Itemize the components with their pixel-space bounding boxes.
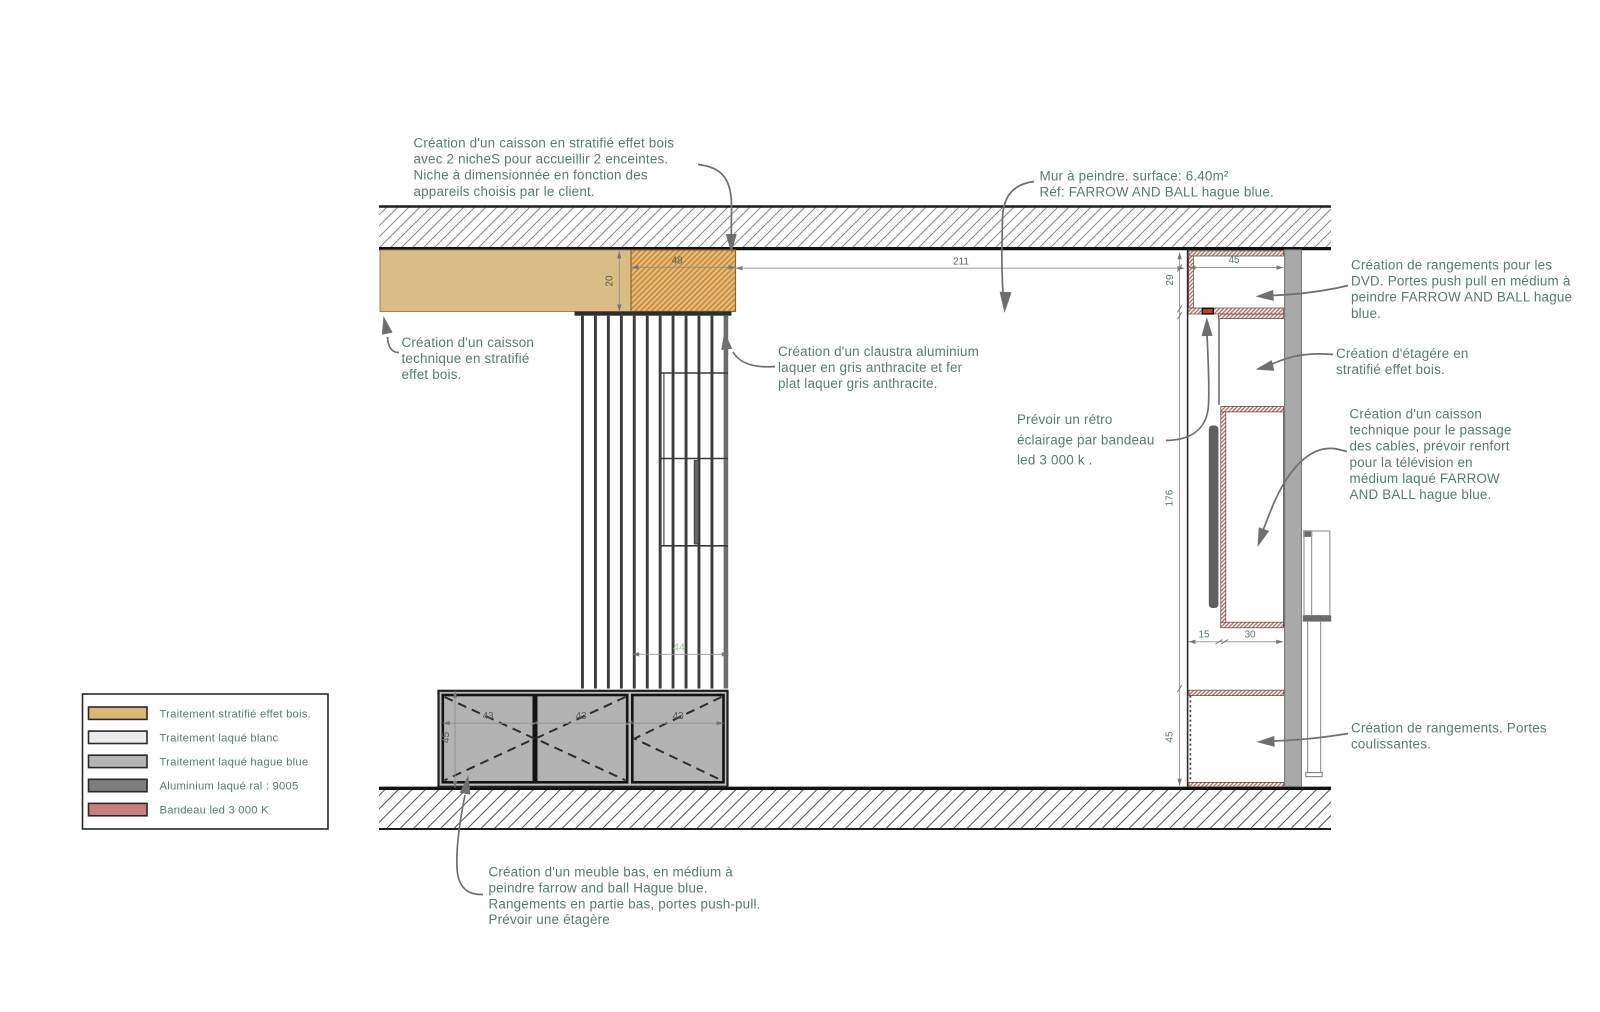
svg-text:éclairage par bandeau: éclairage par bandeau (1017, 432, 1154, 447)
svg-text:43: 43 (482, 711, 494, 722)
svg-text:Création d'un claustra alumini: Création d'un claustra aluminium (778, 344, 979, 359)
svg-text:Création d'étagére en: Création d'étagére en (1336, 346, 1469, 361)
svg-text:Création de rangements. Portes: Création de rangements. Portes (1351, 721, 1547, 736)
svg-text:Création d'un meuble bas, en m: Création d'un meuble bas, en médium à (489, 865, 734, 880)
svg-text:laquer en gris anthracite et f: laquer en gris anthracite et fer (778, 360, 963, 375)
svg-text:Mur à peindre. surface: 6.40m²: Mur à peindre. surface: 6.40m² (1040, 169, 1229, 184)
svg-text:15: 15 (1198, 629, 1210, 640)
svg-text:Aluminium laqué ral : 9005: Aluminium laqué ral : 9005 (160, 781, 299, 793)
svg-text:Traitement stratifié effet boi: Traitement stratifié effet bois. (160, 708, 311, 720)
svg-text:Rangements en partie bas, port: Rangements en partie bas, portes push-pu… (489, 896, 761, 911)
svg-text:Prévoir un rétro: Prévoir un rétro (1017, 412, 1112, 427)
svg-text:20: 20 (605, 275, 616, 287)
svg-text:45: 45 (441, 732, 452, 744)
svg-text:médium laqué FARROW: médium laqué FARROW (1350, 471, 1501, 486)
svg-text:30: 30 (1244, 629, 1256, 640)
svg-text:peindre farrow and ball Hague: peindre farrow and ball Hague blue. (489, 880, 708, 895)
svg-text:48: 48 (671, 256, 683, 267)
svg-text:stratifié effet bois.: stratifié effet bois. (1336, 362, 1445, 377)
svg-text:blue.: blue. (1351, 306, 1381, 321)
svg-text:effet bois.: effet bois. (402, 367, 462, 382)
svg-text:Création d'un caisson en strat: Création d'un caisson en stratifié effet… (414, 136, 675, 151)
svg-text:Création de rangements pour le: Création de rangements pour les (1351, 258, 1552, 273)
svg-text:Traitement laqué hague blue: Traitement laqué hague blue (160, 757, 309, 769)
svg-text:29: 29 (1165, 274, 1176, 286)
svg-text:des cables, prévoir renfort: des cables, prévoir renfort (1350, 439, 1510, 454)
svg-text:technique pour le passage: technique pour le passage (1350, 423, 1512, 438)
svg-text:44: 44 (673, 642, 685, 654)
svg-text:pour la télévision en: pour la télévision en (1350, 455, 1473, 470)
svg-text:45: 45 (1164, 731, 1175, 743)
svg-text:Traitement laqué blanc: Traitement laqué blanc (160, 732, 279, 744)
svg-text:technique en stratifié: technique en stratifié (402, 351, 530, 366)
svg-text:Prévoir une étagère: Prévoir une étagère (489, 912, 610, 927)
svg-text:coulissantes.: coulissantes. (1351, 737, 1431, 752)
svg-text:Création d'un caisson: Création d'un caisson (1350, 407, 1483, 422)
svg-text:peindre FARROW AND BALL hague: peindre FARROW AND BALL hague (1351, 290, 1572, 305)
svg-text:43: 43 (575, 711, 587, 722)
svg-text:Création d'un caisson: Création d'un caisson (402, 335, 535, 350)
svg-text:45: 45 (1228, 255, 1240, 266)
svg-text:led 3 000 k .: led 3 000 k . (1017, 453, 1093, 468)
svg-text:Bandeau led 3 000 K: Bandeau led 3 000 K (160, 805, 270, 817)
svg-text:211: 211 (953, 257, 969, 268)
svg-text:AND BALL hague blue.: AND BALL hague blue. (1350, 487, 1492, 502)
svg-text:avec 2 nicheS pour accueillir: avec 2 nicheS pour accueillir 2 enceinte… (414, 152, 669, 167)
svg-text:plat laquer gris anthracite.: plat laquer gris anthracite. (778, 376, 938, 391)
svg-text:DVD. Portes push pull en médiu: DVD. Portes push pull en médium à (1351, 274, 1571, 289)
svg-text:appareils choisis par le clien: appareils choisis par le client. (414, 184, 595, 199)
svg-text:176: 176 (1164, 489, 1175, 506)
svg-text:Réf: FARROW AND BALL hague blu: Réf: FARROW AND BALL hague blue. (1040, 185, 1274, 200)
svg-text:Niche à dimensionnée en foncti: Niche à dimensionnée en fonction des (414, 168, 648, 183)
svg-text:43: 43 (672, 711, 684, 722)
